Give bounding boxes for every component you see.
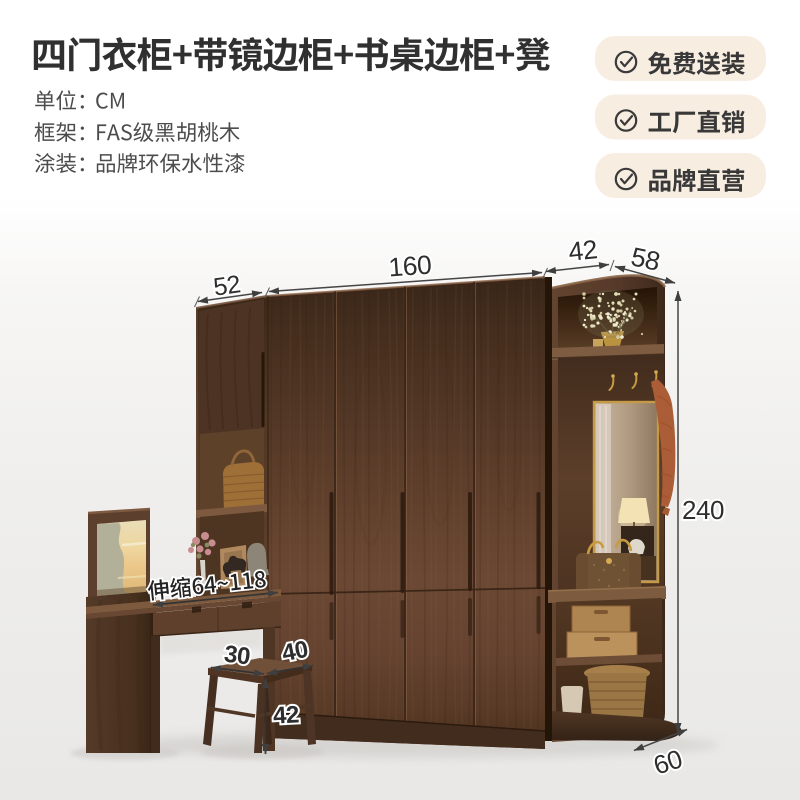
svg-text:30: 30 [223, 641, 252, 671]
svg-text:160: 160 [388, 250, 433, 283]
svg-text:42: 42 [567, 234, 598, 267]
svg-text:42: 42 [272, 701, 299, 729]
svg-text:58: 58 [628, 241, 662, 276]
svg-text:52: 52 [212, 270, 242, 301]
svg-text:240: 240 [682, 495, 724, 525]
svg-text:40: 40 [280, 636, 311, 667]
